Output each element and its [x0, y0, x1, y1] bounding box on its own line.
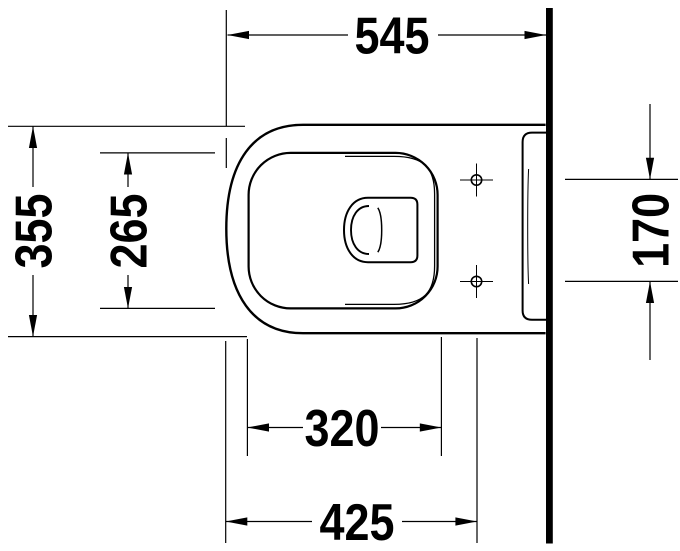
dim-width-total-arrow-bottom	[29, 315, 37, 337]
back-mounting-block-outline	[523, 133, 546, 320]
back-highlight-line	[528, 169, 529, 284]
dim-depth-total-arrow-left	[228, 31, 250, 39]
dim-bowl-inner-depth-label: 320	[305, 400, 380, 458]
dim-hole-depth-label: 425	[320, 494, 395, 551]
dim-width-total-arrow-top	[29, 126, 37, 148]
dim-depth-total: 545	[226, 8, 546, 169]
dim-width-total-label: 355	[6, 194, 64, 269]
sump-outline	[344, 198, 417, 262]
dim-hole-spacing-label: 170	[623, 193, 680, 268]
dim-bowl-inner-depth-arrow-left	[247, 423, 269, 431]
dim-hole-depth-arrow-left	[226, 517, 248, 525]
dim-bowl-inner-width-label: 265	[101, 194, 159, 269]
dim-bowl-inner-width-arrow-bottom	[124, 287, 132, 308]
dim-depth-total-label: 545	[355, 8, 430, 66]
fixing-hole-bottom	[460, 265, 493, 298]
dim-bowl-inner-width: 265	[100, 153, 215, 309]
toilet-plan-view	[226, 8, 553, 544]
wall-section-bar	[546, 8, 553, 544]
dim-depth-total-arrow-right	[525, 31, 547, 39]
dim-bowl-inner-depth: 320	[247, 337, 441, 458]
dim-hole-spacing-arrow-top	[646, 158, 654, 180]
sump-funnel-line	[378, 208, 382, 252]
fixing-hole-top	[460, 164, 493, 197]
technical-drawing-page: 545 355 265 170 320	[0, 0, 680, 551]
sump-inner-arc	[351, 206, 369, 254]
dim-hole-depth-arrow-right	[455, 517, 477, 525]
dim-bowl-inner-width-arrow-top	[124, 153, 132, 175]
dim-hole-spacing: 170	[565, 104, 680, 360]
bowl-inner-rim-shadow-line	[345, 156, 435, 304]
dim-hole-spacing-arrow-bottom	[646, 281, 654, 303]
toilet-plan-technical-drawing: 545 355 265 170 320	[0, 0, 680, 551]
dim-bowl-inner-depth-arrow-right	[420, 423, 442, 431]
